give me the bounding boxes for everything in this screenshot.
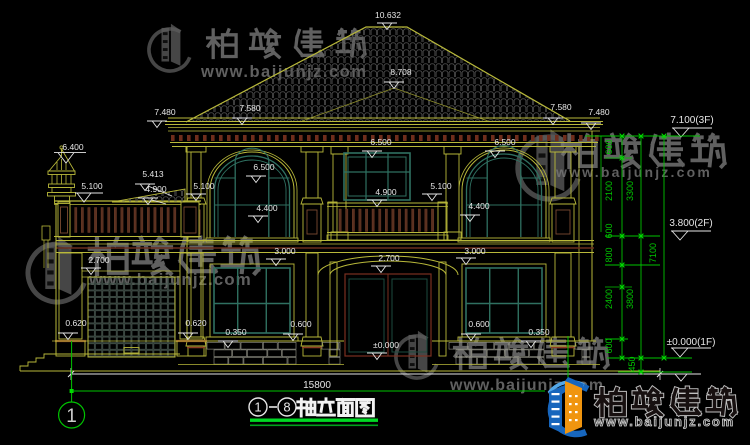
- svg-text:10.632: 10.632: [375, 10, 401, 20]
- svg-text:5.413: 5.413: [142, 169, 164, 179]
- svg-text:3.000: 3.000: [274, 246, 296, 256]
- svg-text:7.580: 7.580: [239, 103, 261, 113]
- svg-text:5.100: 5.100: [430, 181, 452, 191]
- svg-text:15800: 15800: [303, 380, 331, 391]
- svg-text:3.000: 3.000: [464, 246, 486, 256]
- svg-text:2.700: 2.700: [88, 255, 110, 265]
- svg-text:0.600: 0.600: [290, 319, 312, 329]
- svg-text:7100: 7100: [648, 243, 658, 263]
- svg-text:www.baijunjz.com: www.baijunjz.com: [555, 164, 712, 180]
- svg-text:www.baijunjz.com: www.baijunjz.com: [593, 414, 735, 429]
- svg-text:3300: 3300: [625, 181, 635, 201]
- svg-text:7.480: 7.480: [154, 107, 176, 117]
- svg-text:2100: 2100: [604, 181, 614, 201]
- svg-text:600: 600: [604, 139, 614, 154]
- svg-text:0.620: 0.620: [65, 318, 87, 328]
- svg-text:0.350: 0.350: [528, 327, 550, 337]
- svg-text:4.900: 4.900: [375, 187, 397, 197]
- svg-text:6.500: 6.500: [494, 137, 516, 147]
- svg-text:2400: 2400: [604, 289, 614, 309]
- svg-text:600: 600: [604, 338, 614, 353]
- svg-text:5.100: 5.100: [81, 181, 103, 191]
- svg-text:3800: 3800: [625, 289, 635, 309]
- svg-text:6.500: 6.500: [253, 162, 275, 172]
- svg-text:4.400: 4.400: [468, 201, 490, 211]
- svg-text:0.600: 0.600: [468, 319, 490, 329]
- svg-text:0.350: 0.350: [225, 327, 247, 337]
- svg-text:±0.000: ±0.000: [373, 340, 399, 350]
- svg-text:450: 450: [627, 356, 637, 371]
- svg-text:8: 8: [283, 400, 290, 415]
- svg-text:6.500: 6.500: [370, 137, 392, 147]
- svg-text:3.800(2F): 3.800(2F): [669, 218, 712, 229]
- svg-text:±0.000(1F): ±0.000(1F): [667, 337, 716, 348]
- svg-text:5.100: 5.100: [193, 181, 215, 191]
- svg-text:800: 800: [604, 247, 614, 262]
- svg-text:7.100(3F): 7.100(3F): [670, 115, 713, 126]
- svg-text:1: 1: [66, 406, 77, 427]
- svg-text:600: 600: [604, 223, 614, 238]
- svg-text:0.620: 0.620: [185, 318, 207, 328]
- svg-text:1: 1: [254, 400, 261, 415]
- svg-text:7.480: 7.480: [588, 107, 610, 117]
- svg-text:8.708: 8.708: [390, 67, 412, 77]
- svg-text:4.400: 4.400: [256, 203, 278, 213]
- svg-text:2.700: 2.700: [378, 253, 400, 263]
- svg-text:6.400: 6.400: [62, 142, 84, 152]
- svg-text:7.580: 7.580: [550, 102, 572, 112]
